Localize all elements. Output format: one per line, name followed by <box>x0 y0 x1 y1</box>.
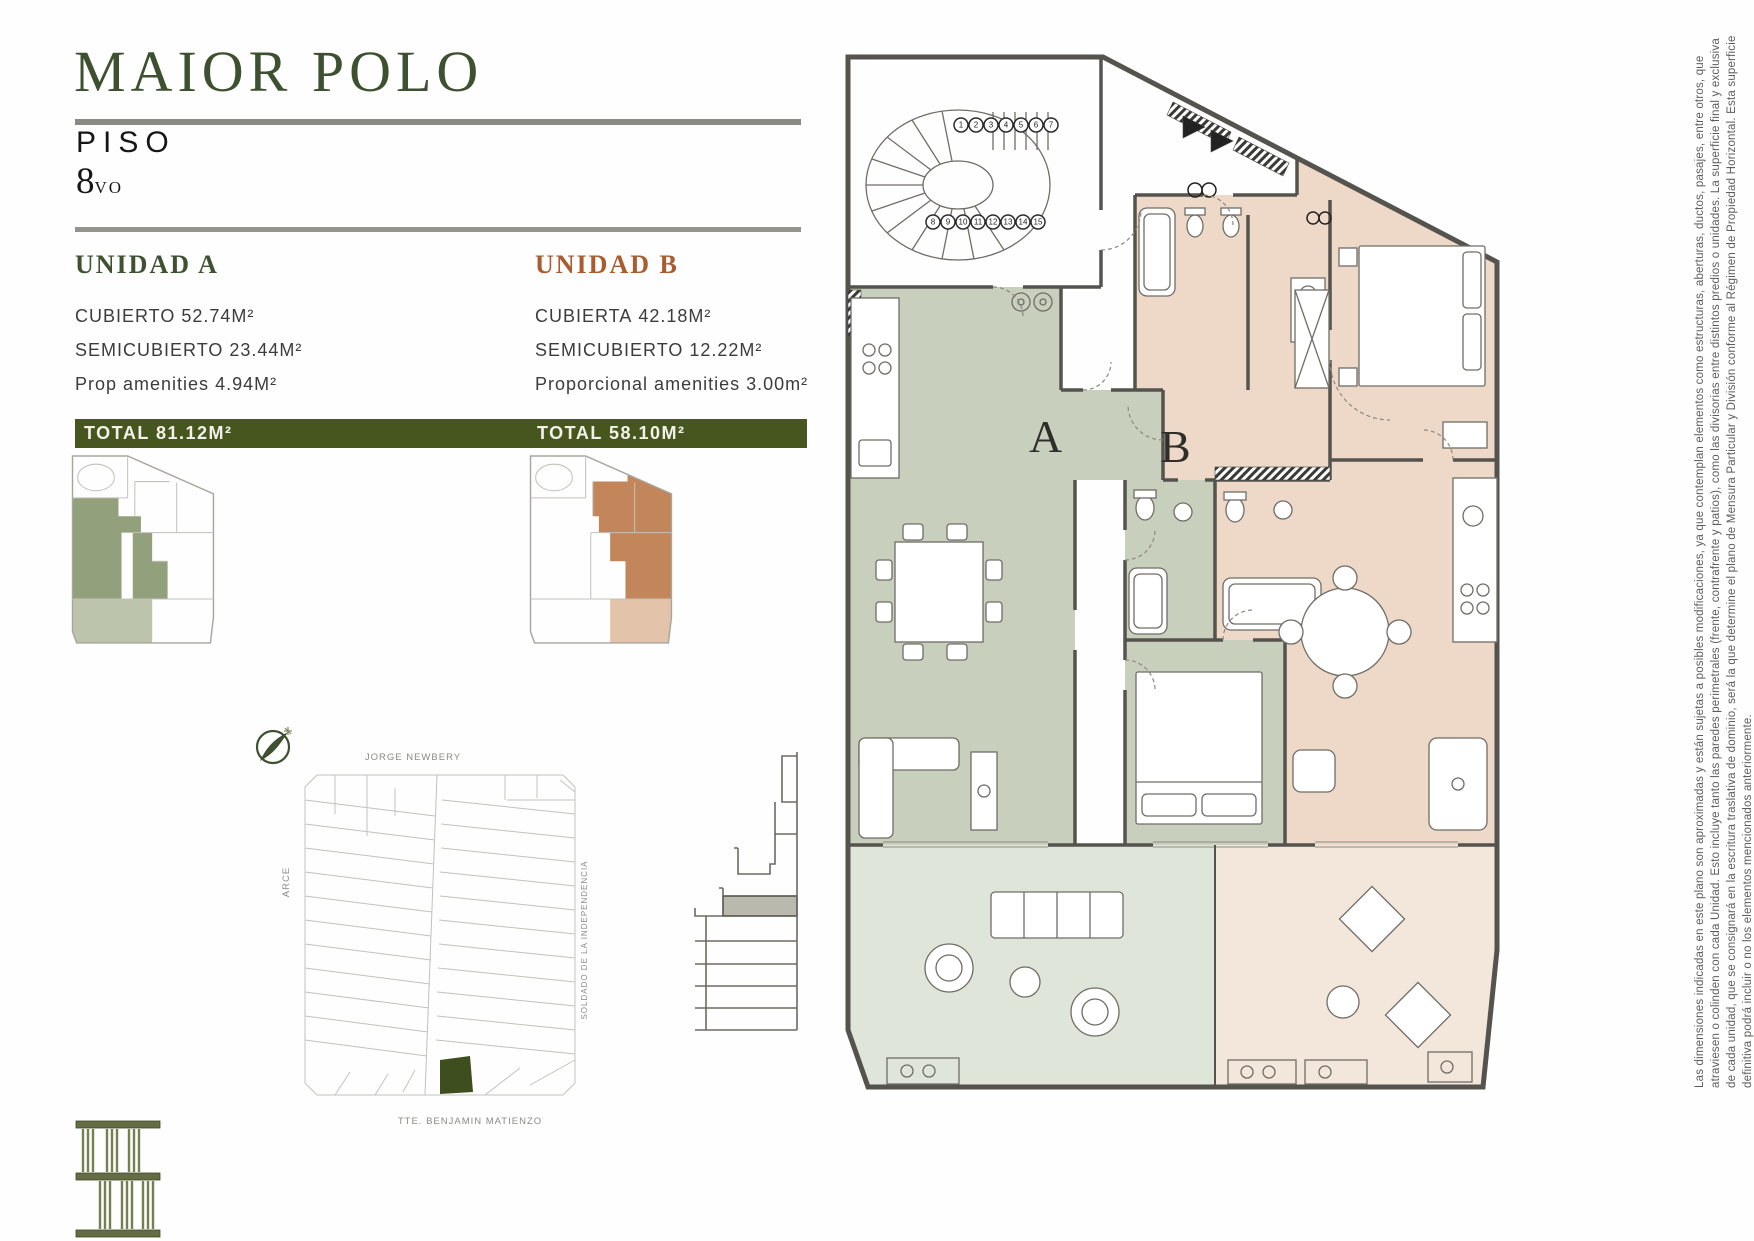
thumb-a-unit-area2 <box>133 533 168 599</box>
project-parcel-highlight <box>440 1056 473 1094</box>
building-section-diagram <box>612 712 812 1034</box>
thumb-b-terrace <box>610 599 671 643</box>
stair-step-row-2: 89101112131415 <box>926 215 1045 229</box>
floor-plan: 1234567 89101112131415 <box>843 50 1503 1095</box>
floor-label: PISO <box>76 126 176 160</box>
unit-a-areas: CUBIERTO52.74M² SEMICUBIERTO23.44M² Prop… <box>75 306 505 395</box>
svg-text:4: 4 <box>1004 121 1009 130</box>
unit-b-total: TOTAL 58.10M² <box>537 423 686 444</box>
unit-b-thumbnail <box>528 455 676 647</box>
terrace-a-floor <box>848 845 1215 1087</box>
stair-step-row-1: 1234567 <box>954 118 1058 132</box>
floor-number-suffix: VO <box>95 178 124 197</box>
svg-text:3: 3 <box>989 121 994 130</box>
header-divider <box>75 119 801 125</box>
terrace-b-floor <box>1215 845 1497 1087</box>
brochure-page: MAIOR POLO PISO 8VO UNIDAD A CUBIERTO52.… <box>0 0 1754 1241</box>
plan-unit-b-letter: B <box>1160 421 1191 472</box>
svg-text:14: 14 <box>1019 218 1028 227</box>
svg-text:15: 15 <box>1034 218 1043 227</box>
svg-text:6: 6 <box>1034 121 1039 130</box>
svg-text:11: 11 <box>974 218 983 227</box>
svg-text:2: 2 <box>974 121 979 130</box>
svg-text:12: 12 <box>989 218 998 227</box>
disclaimer-line: definitiva podrá incluir o no los elemen… <box>1740 30 1754 1088</box>
section-outline <box>695 752 797 1030</box>
svg-text:7: 7 <box>1049 121 1054 130</box>
street-top-label: JORGE NEWBERY <box>365 752 461 763</box>
disclaimer-line: atraviesen o colinden con cada Unidad. E… <box>1708 30 1724 1088</box>
location-map: JORGE NEWBERY ARCE SOLDADO DE LA INDEPEN… <box>275 740 605 1135</box>
thumb-a-terrace <box>73 599 153 643</box>
page-title: MAIOR POLO <box>74 38 483 105</box>
city-block-outline <box>305 775 575 1095</box>
unit-a-total: TOTAL 81.12M² <box>84 423 233 444</box>
svg-text:10: 10 <box>959 218 968 227</box>
brand-logo <box>70 1115 165 1241</box>
highlighted-floor-slab <box>723 896 797 916</box>
street-left-label: ARCE <box>281 867 292 897</box>
section-divider <box>75 227 801 232</box>
thumb-b-unit-area <box>593 474 672 599</box>
unit-a-area-row: CUBIERTO52.74M² <box>75 306 505 327</box>
svg-text:13: 13 <box>1004 218 1013 227</box>
unit-a-title: UNIDAD A <box>75 250 505 280</box>
parcel-lines-right <box>436 775 575 1095</box>
plan-unit-a-letter: A <box>1029 411 1062 462</box>
svg-text:5: 5 <box>1019 121 1024 130</box>
svg-text:1: 1 <box>959 121 964 130</box>
disclaimer-line: de cada unidad, que se consignará en la … <box>1724 30 1740 1088</box>
unit-a-summary: UNIDAD A CUBIERTO52.74M² SEMICUBIERTO23.… <box>75 250 505 408</box>
street-bottom-label: TTE. BENJAMIN MATIENZO <box>398 1116 542 1127</box>
bedroom-a <box>1136 672 1262 824</box>
svg-text:8: 8 <box>931 218 936 227</box>
street-right-label: SOLDADO DE LA INDEPENDENCIA <box>580 860 589 1019</box>
parcel-lines-left <box>305 775 437 1095</box>
disclaimer-line: Las dimensiones indicadas en este plano … <box>1692 30 1708 1088</box>
unit-a-area-row: SEMICUBIERTO23.44M² <box>75 340 505 361</box>
floor-number: 8VO <box>76 160 123 203</box>
floor-number-digit: 8 <box>76 161 95 202</box>
unit-a-area-row: Prop amenities4.94M² <box>75 374 505 395</box>
unit-a-thumbnail <box>70 455 218 647</box>
totals-bar: TOTAL 81.12M² TOTAL 58.10M² <box>75 419 807 448</box>
dining-table-a <box>876 524 1002 660</box>
svg-text:9: 9 <box>946 218 951 227</box>
legal-disclaimer: Las dimensiones indicadas en este plano … <box>1692 30 1754 1088</box>
thumb-a-unit-area <box>73 498 141 599</box>
